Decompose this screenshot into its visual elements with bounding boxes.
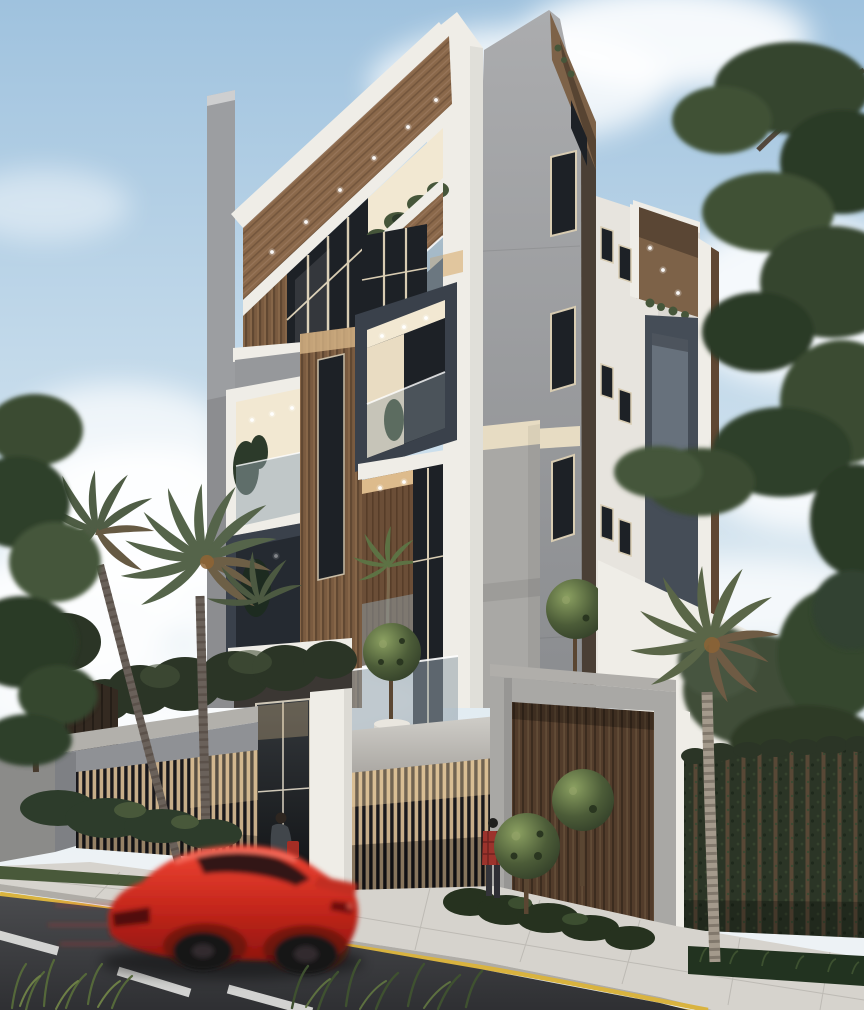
balcony-box-white [226, 374, 313, 537]
garage-screen [336, 716, 497, 890]
rendering-canvas [0, 0, 864, 1010]
exterior-rendering [0, 0, 864, 1010]
balcony-box-centre [355, 282, 457, 472]
